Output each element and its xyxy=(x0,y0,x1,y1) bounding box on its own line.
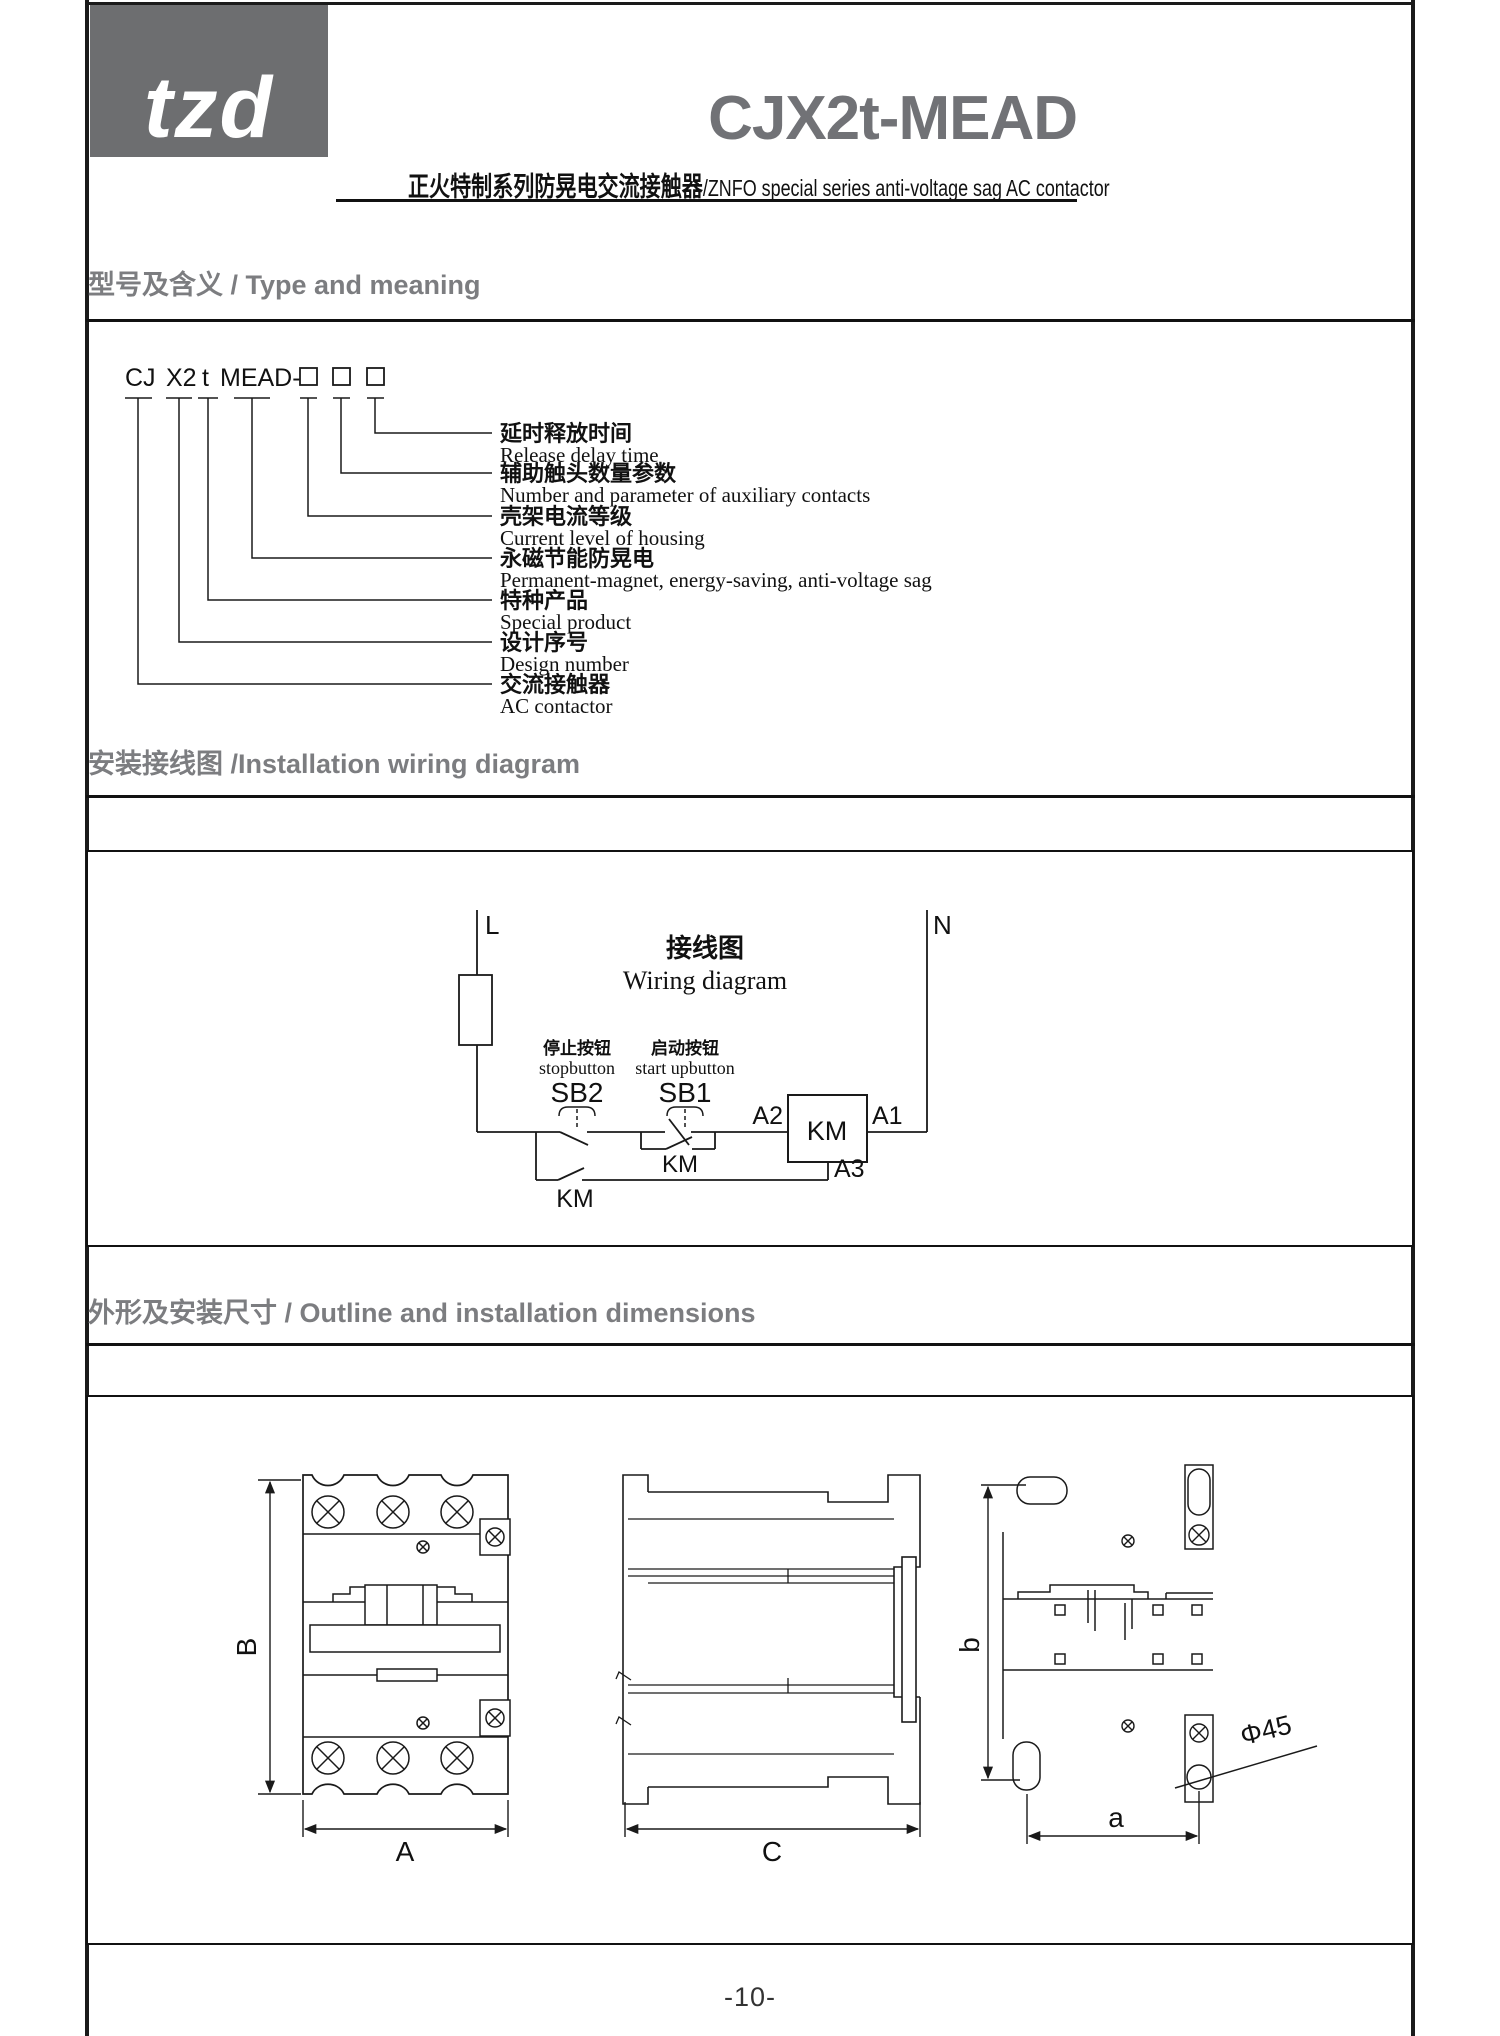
stop-button-id: SB2 xyxy=(551,1077,604,1108)
header-underline xyxy=(336,199,1077,202)
section-title-wiring: 安装接线图 /Installation wiring diagram xyxy=(88,742,580,781)
brand-logo-text: tzd xyxy=(144,65,274,157)
product-subtitle-en: /ZNFO special series anti-voltage sag AC… xyxy=(703,175,1110,201)
dim-b-lines xyxy=(258,1480,301,1794)
mounting-hole-diameter-label: Φ45 xyxy=(1237,1709,1294,1751)
rear-view-screw-icons xyxy=(1122,1525,1209,1742)
coil-terminal-a1: A1 xyxy=(872,1102,903,1130)
contactor-coil-label: KM xyxy=(807,1116,848,1146)
type-label-en-ac-contactor: AC contactor xyxy=(500,694,613,718)
section-rule-type-meaning xyxy=(86,319,1415,322)
side-view-outline-lines xyxy=(623,1475,920,1804)
code-connector-lines xyxy=(125,398,492,684)
phase-line-label: L xyxy=(485,910,499,940)
page-number: -10- xyxy=(0,1982,1500,2013)
latch-contact-label: KM xyxy=(556,1185,594,1213)
neutral-line-label: N xyxy=(933,910,952,940)
holding-contact-label: KM xyxy=(662,1151,698,1178)
section-rule-wiring xyxy=(86,795,1415,798)
coil-terminal-a2: A2 xyxy=(752,1102,783,1130)
code-placeholder-box-icons xyxy=(300,368,384,385)
section-rule-outline xyxy=(86,1343,1415,1346)
pushbutton-cap-icons xyxy=(559,1107,703,1130)
brand-logo-box: tzd xyxy=(90,5,328,157)
product-subtitle-cn: 正火特制系列防晃电交流接触器 xyxy=(408,172,703,202)
stop-button-label-en: stopbutton xyxy=(539,1058,615,1078)
rear-view-lines xyxy=(1003,1465,1317,1802)
code-part-cj: CJ xyxy=(125,364,156,392)
code-part-x2: X2 xyxy=(166,364,197,392)
wiring-title-en: Wiring diagram xyxy=(623,966,787,995)
code-part-t: t xyxy=(202,364,209,392)
stop-button-label-cn: 停止按钮 xyxy=(543,1038,611,1058)
front-view-detail-lines xyxy=(303,1519,510,1737)
wiring-title-cn: 接线图 xyxy=(666,933,744,963)
catalog-page: tzd CJX2t-MEAD 正火特制系列防晃电交流接触器/ZNFO speci… xyxy=(0,0,1500,2036)
rear-mounting-view-drawing: Φ45 b a xyxy=(954,1465,1317,1844)
wiring-diagram-box: L N 接线图 Wiring diagram 停止按钮 stopbutton S… xyxy=(86,850,1414,1247)
side-view-drawing: C xyxy=(616,1475,920,1867)
dim-a-label: A xyxy=(396,1836,415,1867)
dim-c-label: C xyxy=(762,1836,782,1867)
code-part-mead: MEAD- xyxy=(220,364,301,392)
section-title-type-meaning: 型号及含义 / Type and meaning xyxy=(88,263,481,302)
dim-mount-height-label: b xyxy=(954,1637,985,1653)
front-view-drawing: B A xyxy=(231,1475,510,1867)
wiring-diagram: L N 接线图 Wiring diagram 停止按钮 stopbutton S… xyxy=(88,852,1408,1241)
dim-c-lines xyxy=(625,1802,920,1837)
section-title-outline: 外形及安装尺寸 / Outline and installation dimen… xyxy=(88,1291,756,1330)
outline-drawings: B A xyxy=(88,1397,1408,1939)
dim-a-lines xyxy=(303,1800,508,1837)
start-button-label-en: start upbutton xyxy=(635,1058,735,1078)
outline-dimensions-box: B A xyxy=(86,1395,1414,1945)
type-designation-diagram: CJ X2 t MEAD- 延时释放时间 Release delay time … xyxy=(88,355,1412,727)
side-view-rib-lines xyxy=(616,1519,894,1754)
start-button-label-cn: 启动按钮 xyxy=(651,1038,719,1058)
product-model-title: CJX2t-MEAD xyxy=(640,88,1077,150)
dim-b-label: B xyxy=(231,1638,262,1657)
coil-terminal-a3: A3 xyxy=(834,1155,865,1183)
dim-mount-width-label: a xyxy=(1108,1802,1124,1833)
start-button-id: SB1 xyxy=(659,1077,712,1108)
